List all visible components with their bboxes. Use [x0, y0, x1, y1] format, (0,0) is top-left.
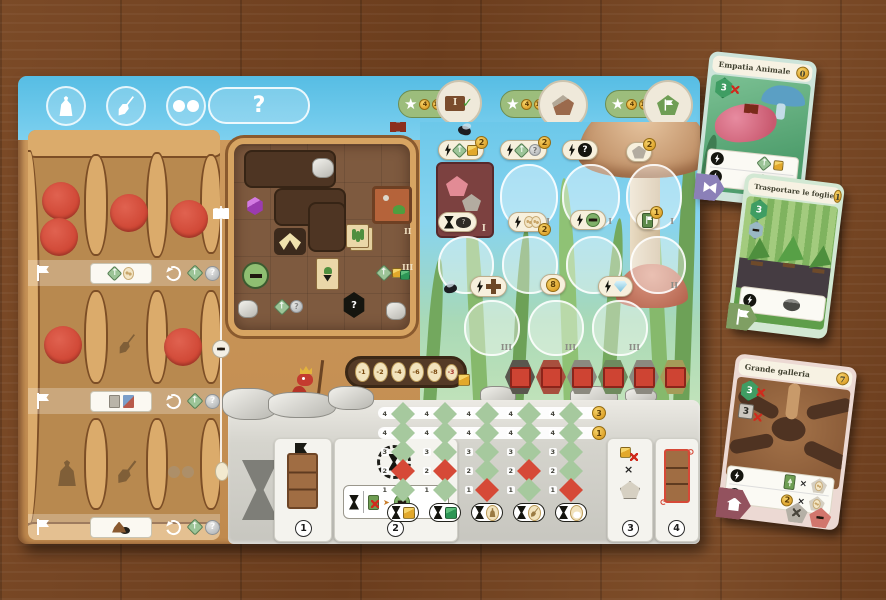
soil-patch-card[interactable] — [372, 186, 412, 224]
track-row-label: 4 — [381, 429, 389, 437]
chip-yellow-cube — [387, 503, 419, 522]
refresh-icon[interactable] — [164, 517, 184, 537]
checkmark-icon: ✓ — [462, 96, 473, 111]
penalty-value: -2 — [373, 362, 388, 382]
down-arrow-icon — [323, 275, 332, 282]
cactus-cards[interactable] — [346, 224, 372, 249]
gallery-arm — [805, 397, 850, 421]
rotating-card-icon — [664, 449, 690, 503]
tunnel-mound — [28, 150, 40, 525]
refresh-icon[interactable] — [164, 391, 184, 411]
bolt-icon — [730, 468, 744, 482]
leaf-ant-icon — [586, 213, 600, 227]
track-row-label: 3 — [507, 448, 515, 456]
butterfly-icon — [703, 181, 717, 193]
ant-token[interactable] — [242, 262, 269, 289]
green-card-icon — [784, 474, 797, 490]
penalty-value: -3 — [445, 364, 458, 381]
person-icon — [58, 96, 74, 116]
objective-coin: 4 — [419, 99, 430, 110]
track-row-label: 4 — [507, 429, 515, 437]
track-row-label: 1 — [423, 486, 431, 494]
hex-space[interactable] — [598, 360, 628, 394]
upgrade-diamond-icon: ↑ — [187, 519, 204, 536]
objective-token-level-card[interactable]: I ✓ — [436, 80, 482, 126]
bolt-icon — [710, 151, 724, 165]
upgrade-diamond-icon: ↑ — [187, 393, 204, 410]
track-row-label: 4 — [423, 410, 431, 418]
track-diamond[interactable] — [391, 478, 415, 502]
slot-header-pentagon: 2 — [626, 142, 652, 162]
penalty-value: -1 — [355, 362, 370, 382]
binoculars-icon — [173, 98, 199, 114]
gem-icon — [614, 281, 627, 292]
track-diamond[interactable] — [433, 478, 457, 502]
track-row-label: 1 — [381, 486, 389, 494]
action-section-4[interactable]: ↻ ↻ 4 — [655, 438, 699, 542]
red-square-tile[interactable] — [665, 367, 686, 388]
tunnel-mound — [200, 154, 220, 254]
bolt-icon — [568, 144, 576, 157]
penalty-value: -6 — [409, 362, 424, 382]
big-hourglass-icon — [242, 460, 278, 520]
gray-pentagon-icon — [462, 194, 481, 211]
cactus-icon — [356, 231, 360, 242]
star-icon: ★ — [611, 95, 624, 113]
mushroom-stem — [775, 103, 786, 120]
section-number: 4 — [668, 520, 685, 537]
tunnel-mound — [28, 130, 220, 158]
upgrade-diamond-icon: ↑ — [514, 142, 530, 158]
empty-card-slot[interactable]: III — [592, 300, 648, 356]
white-ant-marker[interactable] — [213, 208, 229, 219]
row-reward-box[interactable]: ↑ — [90, 263, 153, 284]
section-number: 3 — [622, 520, 639, 537]
card-title: Empatia Animale — [718, 60, 791, 76]
shovel-icon — [113, 92, 139, 120]
shovel-silhouette — [114, 330, 140, 358]
chip-bag — [471, 503, 503, 522]
carried-leaf — [777, 234, 806, 265]
tunnel-mound — [84, 154, 108, 256]
hex-space[interactable] — [660, 360, 690, 394]
hex-space[interactable] — [567, 360, 597, 394]
action-panel: 1 ➤ 2 3 1 4432144321443214432144321 — [228, 400, 700, 544]
slot-header-hourglass-rock: ? — [438, 212, 477, 232]
game-board: ? ★ 4 10 20 I ✓ ★ 4 10 20 ★ 4 10 20 — [18, 76, 700, 544]
card-cost-badge: 1 — [833, 189, 842, 203]
gallery-shaft — [785, 383, 801, 420]
round-tracker-card — [287, 453, 318, 509]
slot-header-gem — [598, 276, 633, 297]
tunnel-cost-square: 3 — [738, 403, 755, 420]
track-row-label: 4 — [465, 410, 473, 418]
hex-tile-row — [505, 360, 690, 394]
rock-pentagon-icon — [552, 95, 574, 115]
descend-card[interactable] — [316, 258, 339, 290]
row-reward-box[interactable] — [90, 391, 153, 412]
track-row-label: 3 — [465, 448, 473, 456]
bolt-icon — [444, 144, 452, 157]
pentagon-icon — [620, 481, 640, 499]
track-row-label: 2 — [507, 467, 515, 475]
hex-space[interactable] — [629, 360, 659, 394]
black-flag-icon — [295, 443, 307, 453]
gallery-arm — [802, 439, 850, 472]
slot-header-ant-leaf — [570, 210, 606, 230]
slot-header-coin: 8 — [540, 274, 566, 295]
chip-green-cube — [429, 503, 461, 522]
penalty-value: -4 — [391, 362, 406, 382]
cost-badge: 2 — [538, 136, 551, 149]
track-row-label: 4 — [381, 410, 389, 418]
card-level-label: I — [482, 224, 486, 234]
crown-icon — [300, 366, 312, 374]
slot-header-card-question: ↑ ? 2 — [500, 140, 547, 160]
rock-question-icon: ? — [456, 217, 471, 228]
section-number: 1 — [295, 520, 312, 537]
tunnel-mound — [146, 418, 168, 510]
cross-icon — [486, 279, 501, 294]
player-tunnels-area: ↑ ↑ ? ↑ ? ↑ ? — [28, 130, 220, 540]
bolt-icon — [604, 280, 612, 293]
action-section-1[interactable]: 1 — [274, 438, 332, 542]
gallery-center — [770, 415, 807, 443]
upgrade-diamond-icon: ↑ — [452, 142, 468, 158]
flag-icon — [663, 99, 674, 110]
flag-icon — [734, 308, 751, 326]
track-row-label: 3 — [549, 448, 557, 456]
empty-card-slot[interactable]: II — [630, 236, 686, 294]
help-button[interactable]: ? — [208, 87, 310, 124]
tunnel-mound — [146, 290, 168, 384]
depth-egg-marker[interactable] — [215, 462, 229, 481]
hex-space[interactable] — [536, 360, 566, 394]
tunnel-mound — [84, 418, 108, 510]
track-diamond[interactable] — [475, 478, 499, 502]
cycle-arrow: ↻ — [657, 498, 667, 506]
flag-icon — [35, 519, 50, 535]
track-diamond[interactable] — [517, 478, 541, 502]
bolt-icon — [576, 214, 584, 227]
track-row-label: 4 — [549, 429, 557, 437]
flag-icon — [35, 393, 50, 409]
table-surface: { "ui": {"question": "?", "multiply": "\… — [0, 0, 886, 600]
tunnel-mound — [200, 290, 220, 384]
question-coin-icon: ? — [205, 520, 220, 535]
red-chamber-space[interactable] — [170, 200, 208, 238]
explore-reference-button[interactable] — [166, 86, 206, 126]
house-icon — [726, 497, 742, 512]
track-row-label: 4 — [507, 410, 515, 418]
tunnel-mound — [84, 290, 108, 384]
dig-level-label: II — [404, 226, 411, 236]
gallery-arm — [729, 433, 775, 455]
card-cost-badge: 0 — [796, 66, 810, 80]
objective-coin: 4 — [521, 99, 532, 110]
bolt-icon — [514, 216, 522, 229]
track-diamond[interactable] — [559, 478, 583, 502]
penalty-coin-track: -1 -2 -4 -6 -8 -3 — [345, 356, 467, 388]
shovel-silhouette — [111, 455, 142, 488]
track-row-label: 2 — [465, 467, 473, 475]
red-square-tile[interactable] — [510, 367, 531, 388]
bag-silhouette — [56, 460, 78, 486]
red-ant-illustration — [390, 122, 406, 132]
bolt-icon — [506, 144, 514, 157]
mystery-hex-token[interactable]: ? — [342, 292, 366, 318]
sprout-icon — [324, 267, 332, 274]
seed-icon — [782, 298, 800, 312]
card-cost-badge: 7 — [835, 372, 849, 386]
stone — [268, 392, 336, 418]
track-row-label: 3 — [423, 448, 431, 456]
red-chamber-space[interactable] — [44, 326, 82, 364]
card-trasportare-le-foglie[interactable]: Trasportare le foglie 1 3 — [727, 172, 845, 339]
red-chamber-space[interactable] — [164, 328, 202, 366]
question-coin-icon: ? — [205, 394, 220, 409]
pink-pentagon-icon — [446, 176, 468, 196]
question-coin-icon: ? — [205, 266, 220, 281]
rock-token[interactable] — [386, 302, 406, 320]
chevron-token[interactable] — [274, 228, 306, 255]
slot-header-discard: ? — [562, 140, 598, 160]
question-mark: ? — [253, 93, 266, 118]
multiply-sign: × — [799, 478, 808, 489]
cost-badge: 1 — [650, 206, 663, 219]
slot-header-card-cube: ↑ 2 — [438, 140, 484, 160]
track-row-label: 4 — [423, 429, 431, 437]
multiply-sign: × — [624, 463, 633, 476]
chip-shovel — [513, 503, 545, 522]
red-square-tile[interactable] — [603, 367, 624, 388]
action-section-3[interactable]: × 3 — [607, 438, 653, 542]
dug-tunnel[interactable] — [308, 202, 346, 252]
tunnel-row-band-2: ↑ ? — [28, 388, 220, 414]
pentagon-egg-icon — [810, 477, 828, 494]
cost-badge: 2 — [475, 136, 488, 149]
track-row-label: 4 — [549, 410, 557, 418]
hex-space[interactable] — [505, 360, 535, 394]
track-row-label: 1 — [507, 486, 515, 494]
worker-reference-button[interactable] — [46, 86, 86, 126]
reward-diamond-question: ↑ ? — [276, 300, 303, 313]
track-row-label: 4 — [465, 429, 473, 437]
dig-reference-button[interactable] — [106, 86, 146, 126]
tunnel-row-band-3: ↑ ? — [28, 514, 220, 540]
empty-card-slot[interactable]: III — [528, 300, 584, 356]
ant-cost-hex: 3 — [748, 198, 769, 221]
coin-eight-icon: 8 — [546, 278, 560, 292]
track-row-label: 2 — [381, 467, 389, 475]
reward-diamond-cubes: ↑ — [378, 266, 410, 280]
track-row-label: 1 — [465, 486, 473, 494]
cost-badge: 2 — [643, 138, 656, 151]
yellow-cube-token[interactable] — [458, 374, 470, 386]
bolt-icon — [476, 280, 484, 293]
track-row-label: 1 — [549, 486, 557, 494]
track-row-label: 3 — [381, 448, 389, 456]
section-number: 2 — [387, 520, 404, 537]
row-reward-box[interactable] — [90, 517, 153, 538]
red-chamber-space[interactable] — [42, 182, 80, 220]
red-chamber-space[interactable] — [110, 194, 148, 232]
rock-token[interactable] — [312, 158, 334, 178]
diamond-tracks: 4432144321443214432144321 — [378, 402, 600, 502]
black-question-icon: ? — [578, 143, 592, 157]
coin-icon: 2 — [781, 493, 794, 506]
star-icon: ★ — [506, 95, 519, 113]
slot-header-flag-card: 1 — [636, 210, 659, 230]
star-icon: ★ — [404, 95, 417, 113]
pebble — [383, 195, 389, 201]
hourglass-icon — [444, 216, 454, 229]
cost-badge: 2 — [538, 223, 551, 236]
objective-coin: 4 — [626, 99, 637, 110]
refresh-icon[interactable] — [164, 263, 184, 283]
flag-icon — [35, 265, 50, 281]
rider-ant — [744, 104, 759, 114]
blue-ant-hex — [747, 220, 765, 240]
track-row-label: 2 — [549, 467, 557, 475]
red-square-tile[interactable] — [634, 367, 655, 388]
cycle-arrow: ↻ — [687, 448, 697, 456]
chip-binoculars — [555, 503, 587, 522]
track-row-label: 2 — [423, 467, 431, 475]
tunnel-mound — [146, 152, 168, 258]
rock-token[interactable] — [238, 300, 258, 318]
sprout-icon — [393, 205, 405, 214]
red-square-tile[interactable] — [572, 367, 593, 388]
binoculars-silhouette — [168, 464, 194, 480]
tunnel-row-band-1: ↑ ↑ ? — [28, 260, 220, 286]
empty-card-slot[interactable]: III — [464, 300, 520, 356]
slot-header-cross — [470, 276, 507, 297]
chevron-icon — [279, 233, 301, 250]
stone — [328, 386, 374, 410]
red-chamber-space[interactable] — [40, 218, 78, 256]
slot-header-eggs: 2 — [508, 212, 547, 232]
upgrade-diamond-icon: ↑ — [187, 265, 204, 282]
card-grande-galleria[interactable]: Grande galleria 7 3 3 × 2 × — [716, 353, 857, 531]
dig-site-grid: II III ↑ ↑ ? ? — [228, 138, 416, 336]
depth-token[interactable] — [212, 340, 230, 358]
flag-pentagon-icon — [657, 95, 679, 115]
crystal-token[interactable] — [246, 197, 264, 215]
card-title: Grande galleria — [744, 362, 810, 379]
red-square-tile[interactable] — [541, 367, 562, 388]
penalty-value: -8 — [427, 362, 442, 382]
